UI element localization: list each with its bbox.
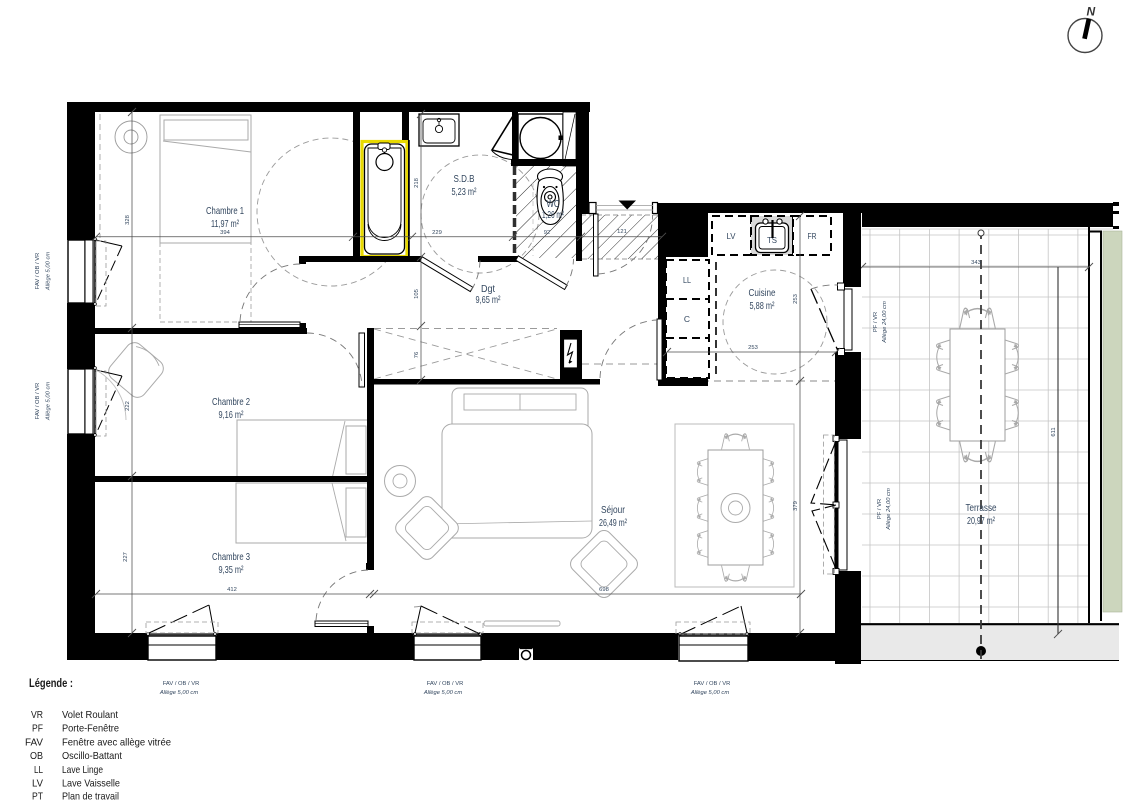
svg-text:698: 698 [599,587,609,593]
svg-text:Allège 24,00 cm: Allège 24,00 cm [882,301,888,344]
svg-text:Dgt: Dgt [481,284,495,295]
svg-text:Séjour: Séjour [601,505,625,516]
svg-text:FAV: FAV [25,736,43,748]
svg-text:Allège 5,00 cm: Allège 5,00 cm [46,252,52,292]
svg-text:FAV / OB / VR: FAV / OB / VR [427,681,464,687]
svg-text:Plan de travail: Plan de travail [62,791,119,800]
svg-text:VR: VR [31,709,43,721]
svg-text:227: 227 [123,552,129,562]
svg-text:Chambre 3: Chambre 3 [212,552,250,563]
svg-text:Terrasse: Terrasse [966,503,997,514]
svg-text:LV: LV [727,231,736,241]
svg-text:Cuisine: Cuisine [749,288,776,299]
svg-text:394: 394 [220,230,230,236]
svg-text:Allège 5,00 cm: Allège 5,00 cm [690,690,730,696]
svg-text:611: 611 [1051,427,1057,436]
svg-text:26,49 m²: 26,49 m² [599,518,627,529]
svg-text:FAV / OB / VR: FAV / OB / VR [35,383,41,420]
svg-text:LL: LL [683,275,691,285]
svg-text:Légende :: Légende : [29,676,73,690]
svg-text:253: 253 [793,294,799,304]
svg-text:379: 379 [793,501,799,511]
svg-text:412: 412 [227,587,237,593]
svg-text:Oscillo-Battant: Oscillo-Battant [62,750,122,762]
svg-text:5,88 m²: 5,88 m² [750,301,775,312]
svg-text:9,65 m²: 9,65 m² [476,295,501,306]
svg-text:WC: WC [547,199,560,210]
svg-text:11,97 m²: 11,97 m² [211,219,239,230]
svg-text:PT: PT [32,791,43,800]
svg-text:20,97 m²: 20,97 m² [967,516,995,527]
svg-text:Allège 5,00 cm: Allège 5,00 cm [423,690,463,696]
svg-text:FAV / OB / VR: FAV / OB / VR [163,681,200,687]
svg-text:105: 105 [414,289,420,299]
svg-text:Allège 24,00 cm: Allège 24,00 cm [886,488,892,531]
svg-text:Volet Roulant: Volet Roulant [62,709,118,721]
svg-text:343: 343 [971,260,981,266]
svg-text:Fenêtre avec allège vitrée: Fenêtre avec allège vitrée [62,736,171,748]
svg-text:222: 222 [125,401,131,411]
svg-text:92: 92 [544,230,550,236]
svg-text:229: 229 [432,230,442,236]
svg-text:121: 121 [617,229,627,235]
svg-text:328: 328 [125,215,131,225]
svg-text:LL: LL [34,764,43,776]
svg-text:OB: OB [30,750,43,762]
svg-text:9,35 m²: 9,35 m² [219,565,244,576]
svg-text:LV: LV [32,778,43,790]
svg-text:PF / VR: PF / VR [877,499,883,519]
svg-text:Allège 5,00 cm: Allège 5,00 cm [46,382,52,422]
svg-text:Lave Linge: Lave Linge [62,764,103,776]
svg-text:Chambre 1: Chambre 1 [206,206,244,217]
svg-text:76: 76 [414,352,420,358]
svg-text:FAV / OB / VR: FAV / OB / VR [694,681,731,687]
svg-text:1,26 m²: 1,26 m² [542,210,564,221]
svg-text:Allège 5,00 cm: Allège 5,00 cm [159,690,199,696]
svg-text:Chambre 2: Chambre 2 [212,397,250,408]
svg-text:FR: FR [808,231,817,241]
svg-text:PF / VR: PF / VR [873,312,879,332]
svg-text:N: N [1087,5,1096,19]
svg-text:9,16 m²: 9,16 m² [219,410,244,421]
svg-text:PF: PF [32,723,43,735]
svg-text:S.D.B: S.D.B [454,174,475,185]
svg-text:218: 218 [414,178,420,188]
svg-text:5,23 m²: 5,23 m² [452,187,477,198]
svg-text:Lave Vaisselle: Lave Vaisselle [62,778,120,790]
svg-text:253: 253 [748,345,758,351]
svg-text:Porte-Fenêtre: Porte-Fenêtre [62,723,119,735]
svg-text:FAV / OB / VR: FAV / OB / VR [35,253,41,290]
svg-text:C: C [684,314,690,324]
